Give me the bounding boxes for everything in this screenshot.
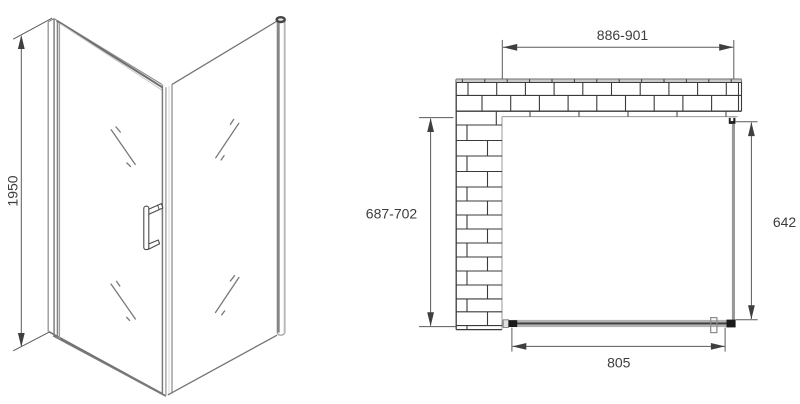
svg-text:642: 642 [773,214,797,230]
svg-text:805: 805 [607,355,631,371]
svg-text:886-901: 886-901 [597,27,649,43]
svg-text:1950: 1950 [4,175,20,206]
svg-text:687-702: 687-702 [366,205,418,221]
